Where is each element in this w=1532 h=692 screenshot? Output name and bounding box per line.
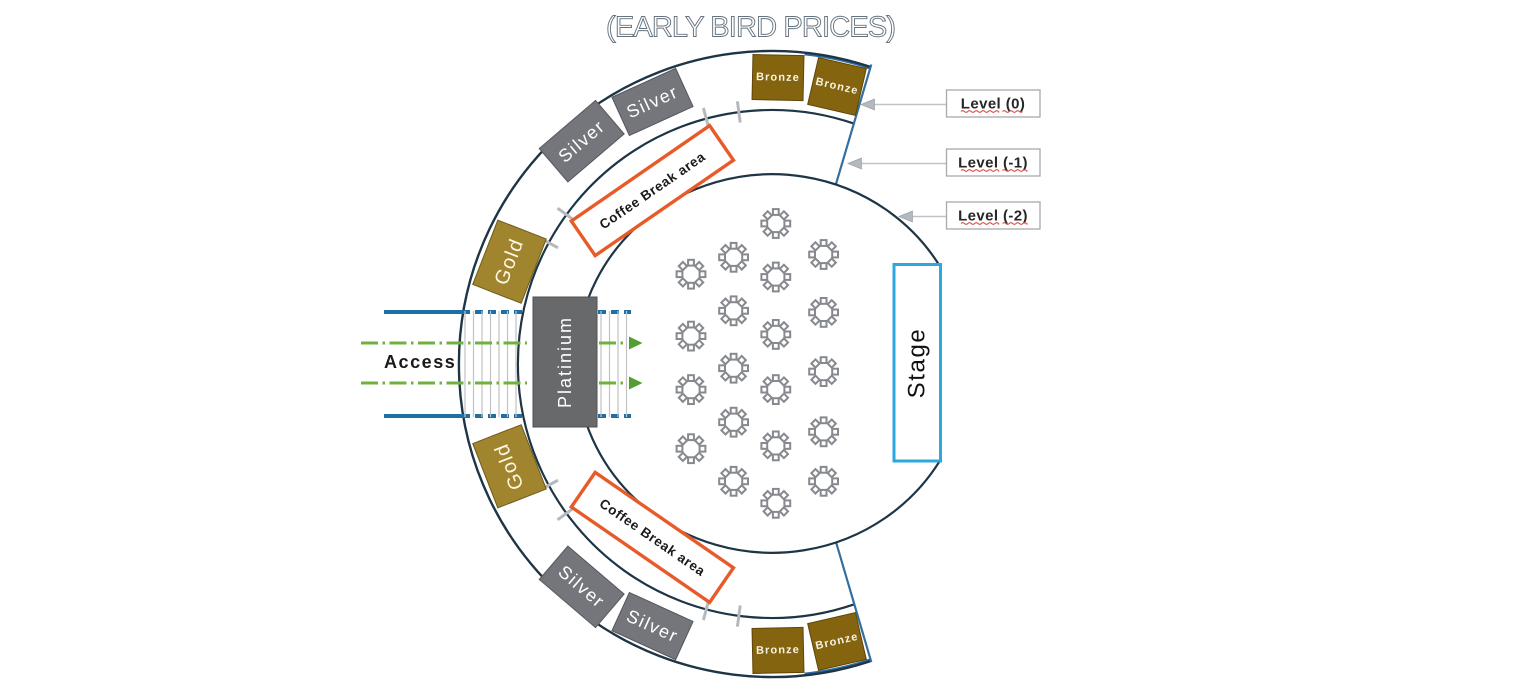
- svg-text:Bronze: Bronze: [756, 644, 800, 657]
- svg-text:Bronze: Bronze: [756, 71, 800, 84]
- svg-text:Level (0): Level (0): [961, 96, 1025, 113]
- svg-text:Stage: Stage: [904, 328, 931, 399]
- svg-text:Level (-1): Level (-1): [958, 155, 1028, 172]
- svg-text:Platinium: Platinium: [555, 316, 575, 408]
- svg-text:Level (-2): Level (-2): [958, 208, 1028, 225]
- svg-text:Access: Access: [384, 352, 456, 372]
- svg-text:(EARLY BIRD PRICES): (EARLY BIRD PRICES): [606, 12, 898, 44]
